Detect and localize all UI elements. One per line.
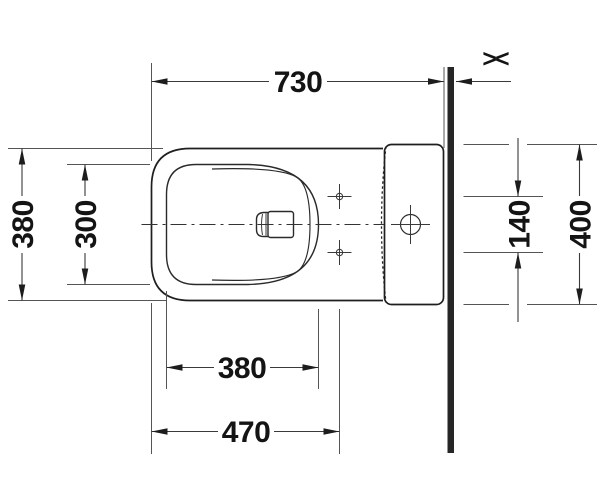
toilet-plan-view-drawing: 730 >< 380 300 380 bbox=[0, 0, 600, 500]
dim-730-arrow-left bbox=[152, 78, 168, 85]
fixing-hole-top bbox=[328, 184, 352, 209]
dim-300-arrow-up bbox=[82, 165, 89, 181]
dim-380-inner-label: 380 bbox=[218, 352, 267, 385]
dim-400-arrow-down bbox=[576, 289, 583, 305]
technical-drawing-page: 730 >< 380 300 380 bbox=[0, 0, 600, 500]
dim-380-inner: 380 bbox=[167, 291, 319, 389]
wall bbox=[444, 67, 454, 453]
dim-380-outer-arrow-up bbox=[19, 149, 26, 165]
fixing-hole-bottom bbox=[328, 240, 352, 265]
dim-300-label: 300 bbox=[70, 200, 103, 249]
dim-380-outer-label: 380 bbox=[7, 200, 40, 249]
dim-140-arrow-up bbox=[515, 253, 522, 269]
dim-400-arrow-up bbox=[576, 145, 583, 161]
dim-140-label: 140 bbox=[504, 200, 537, 249]
dim-470-arrow-left bbox=[152, 428, 168, 435]
dim-140: 140 bbox=[464, 138, 544, 322]
wall-gap-symbol: >< bbox=[482, 45, 509, 73]
dim-730-arrow-right bbox=[428, 78, 444, 85]
supply-hole bbox=[391, 205, 430, 244]
dim-730: 730 bbox=[152, 63, 445, 161]
dim-400-label: 400 bbox=[565, 200, 598, 249]
dim-140-arrow-down bbox=[515, 181, 522, 197]
wall-gap-arrow bbox=[456, 78, 472, 85]
dim-380-outer-arrow-down bbox=[19, 285, 26, 301]
dim-380-inner-arrow-left bbox=[167, 364, 183, 371]
dim-470-label: 470 bbox=[222, 416, 271, 449]
dim-470-arrow-right bbox=[324, 428, 340, 435]
wall-gap-indicator: >< bbox=[456, 45, 511, 85]
dim-300: 300 bbox=[67, 165, 150, 285]
wall-section-line bbox=[448, 67, 455, 453]
dim-380-inner-arrow-right bbox=[303, 364, 319, 371]
dim-300-arrow-down bbox=[82, 269, 89, 285]
dim-730-label: 730 bbox=[274, 66, 323, 99]
